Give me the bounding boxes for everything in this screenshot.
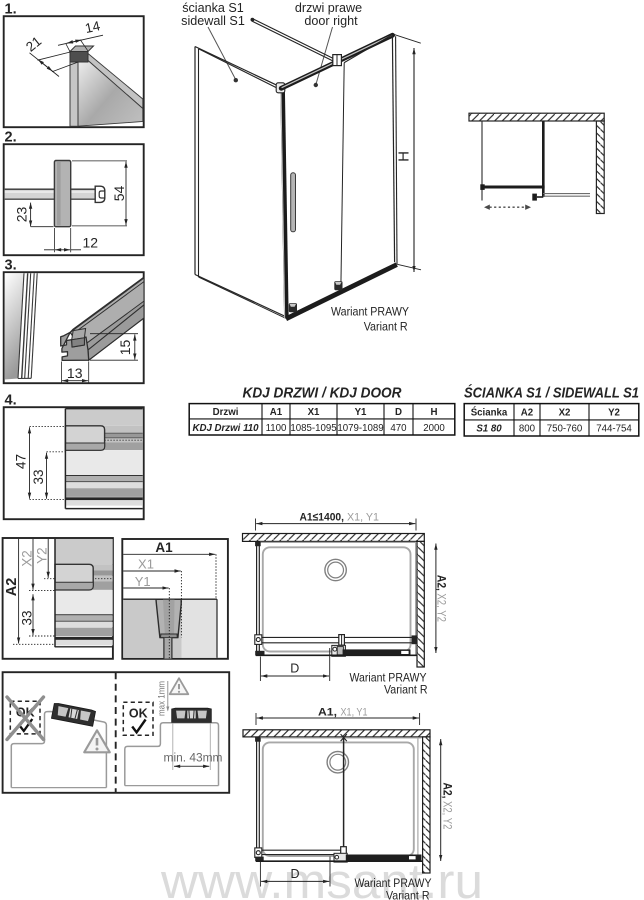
svg-text:Variant R: Variant R — [384, 682, 428, 696]
svg-text:A2,X2, Y2: A2,X2, Y2 — [441, 783, 453, 830]
svg-text:sidewall S1: sidewall S1 — [181, 14, 245, 28]
svg-text:min. 43mm: min. 43mm — [164, 753, 223, 765]
svg-text:2000: 2000 — [423, 423, 445, 434]
svg-text:KDJ Drzwi 110: KDJ Drzwi 110 — [192, 423, 259, 434]
svg-text:14: 14 — [84, 18, 102, 36]
svg-text:Ścianka: Ścianka — [471, 406, 508, 418]
svg-text:D: D — [290, 661, 299, 675]
svg-text:54: 54 — [111, 186, 127, 202]
svg-text:800: 800 — [519, 424, 536, 435]
svg-text:47: 47 — [14, 454, 29, 469]
svg-text:KDJ DRZWI / KDJ DOOR: KDJ DRZWI / KDJ DOOR — [243, 386, 402, 402]
svg-text:drzwi prawe: drzwi prawe — [295, 1, 362, 15]
svg-text:H: H — [396, 151, 413, 162]
svg-text:door right: door right — [304, 14, 358, 28]
svg-text:Variant R: Variant R — [386, 888, 430, 900]
svg-text:15: 15 — [117, 340, 133, 356]
svg-text:A1,X1, Y1: A1,X1, Y1 — [318, 706, 368, 718]
svg-text:ścianka S1: ścianka S1 — [182, 1, 244, 15]
svg-text:A1≤1400,X1, Y1: A1≤1400,X1, Y1 — [300, 512, 380, 524]
svg-text:13: 13 — [67, 365, 83, 381]
svg-text:1100: 1100 — [266, 423, 287, 434]
svg-text:D: D — [290, 867, 299, 881]
svg-text:33: 33 — [31, 469, 46, 484]
svg-text:X2: X2 — [559, 407, 571, 418]
svg-text:Wariant PRAWY: Wariant PRAWY — [331, 305, 409, 319]
svg-text:OK: OK — [129, 707, 148, 721]
svg-text:X2: X2 — [19, 550, 34, 567]
svg-text:1.: 1. — [5, 2, 17, 18]
svg-text:max 1mm: max 1mm — [157, 681, 168, 716]
svg-text:X1: X1 — [138, 557, 154, 572]
svg-text:Drzwi: Drzwi — [213, 407, 239, 418]
svg-text:Y2: Y2 — [608, 407, 620, 418]
svg-text:3.: 3. — [5, 258, 17, 274]
svg-text:2.: 2. — [5, 130, 17, 146]
svg-text:1079-1089: 1079-1089 — [337, 423, 383, 434]
svg-text:H: H — [431, 407, 438, 418]
svg-text:750-760: 750-760 — [547, 424, 583, 435]
svg-text:Variant R: Variant R — [364, 319, 408, 333]
svg-text:23: 23 — [14, 207, 30, 223]
svg-text:12: 12 — [83, 234, 99, 250]
svg-text:X1: X1 — [308, 407, 320, 418]
svg-text:Y2: Y2 — [34, 547, 49, 564]
svg-text:ŚCIANKA S1 / SIDEWALL S1: ŚCIANKA S1 / SIDEWALL S1 — [464, 384, 639, 402]
svg-text:S1 80: S1 80 — [476, 424, 502, 435]
svg-text:A2: A2 — [4, 578, 20, 597]
svg-text:744-754: 744-754 — [596, 424, 632, 435]
svg-text:Y1: Y1 — [135, 574, 151, 589]
svg-text:470: 470 — [390, 423, 407, 434]
svg-text:Y1: Y1 — [355, 407, 367, 418]
svg-text:1085-1095: 1085-1095 — [290, 423, 336, 434]
svg-text:A2: A2 — [521, 407, 533, 418]
svg-text:A2,X2, Y2: A2,X2, Y2 — [435, 575, 447, 622]
svg-text:33: 33 — [19, 610, 34, 625]
svg-text:A1: A1 — [270, 407, 283, 418]
svg-text:A1: A1 — [155, 540, 173, 555]
svg-text:21: 21 — [23, 33, 44, 54]
svg-text:D: D — [395, 407, 402, 418]
svg-text:4.: 4. — [5, 393, 17, 409]
